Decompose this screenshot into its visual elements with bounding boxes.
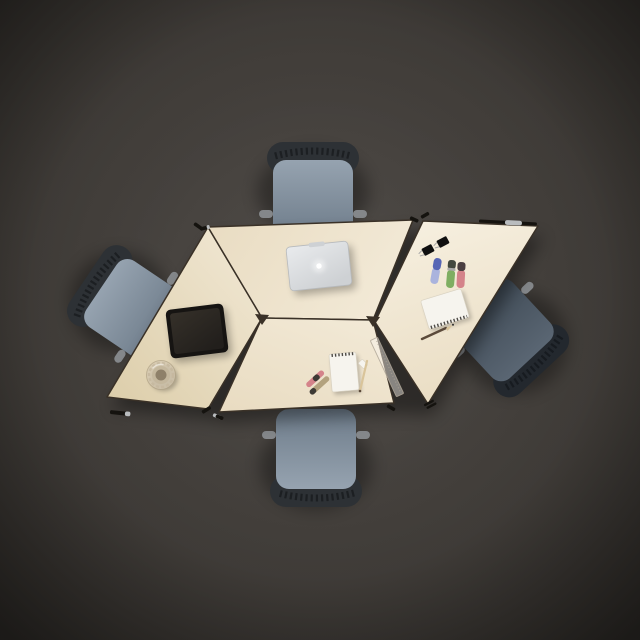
chair-armrest-right [353,210,367,218]
chair-seat [276,409,356,489]
chair-armrest-left [259,210,273,218]
marker-body [456,270,465,288]
chair-armrest-left [356,431,370,439]
chair-armrest-right [262,431,276,439]
marker-pink [456,262,465,288]
notepad-bottom [329,352,361,395]
pencil-tip [359,390,362,393]
tablet [165,303,232,364]
laptop [286,238,357,296]
clamp-silver [505,220,522,226]
scene-canvas [0,0,640,640]
scene [0,0,640,640]
marker-body [446,270,456,289]
marker-cap [457,262,465,271]
pencil-lead [452,324,454,326]
cup-inside [156,370,167,381]
notepad-page [329,352,359,392]
tablet-screen [170,308,225,355]
chair-bottom [262,409,370,507]
